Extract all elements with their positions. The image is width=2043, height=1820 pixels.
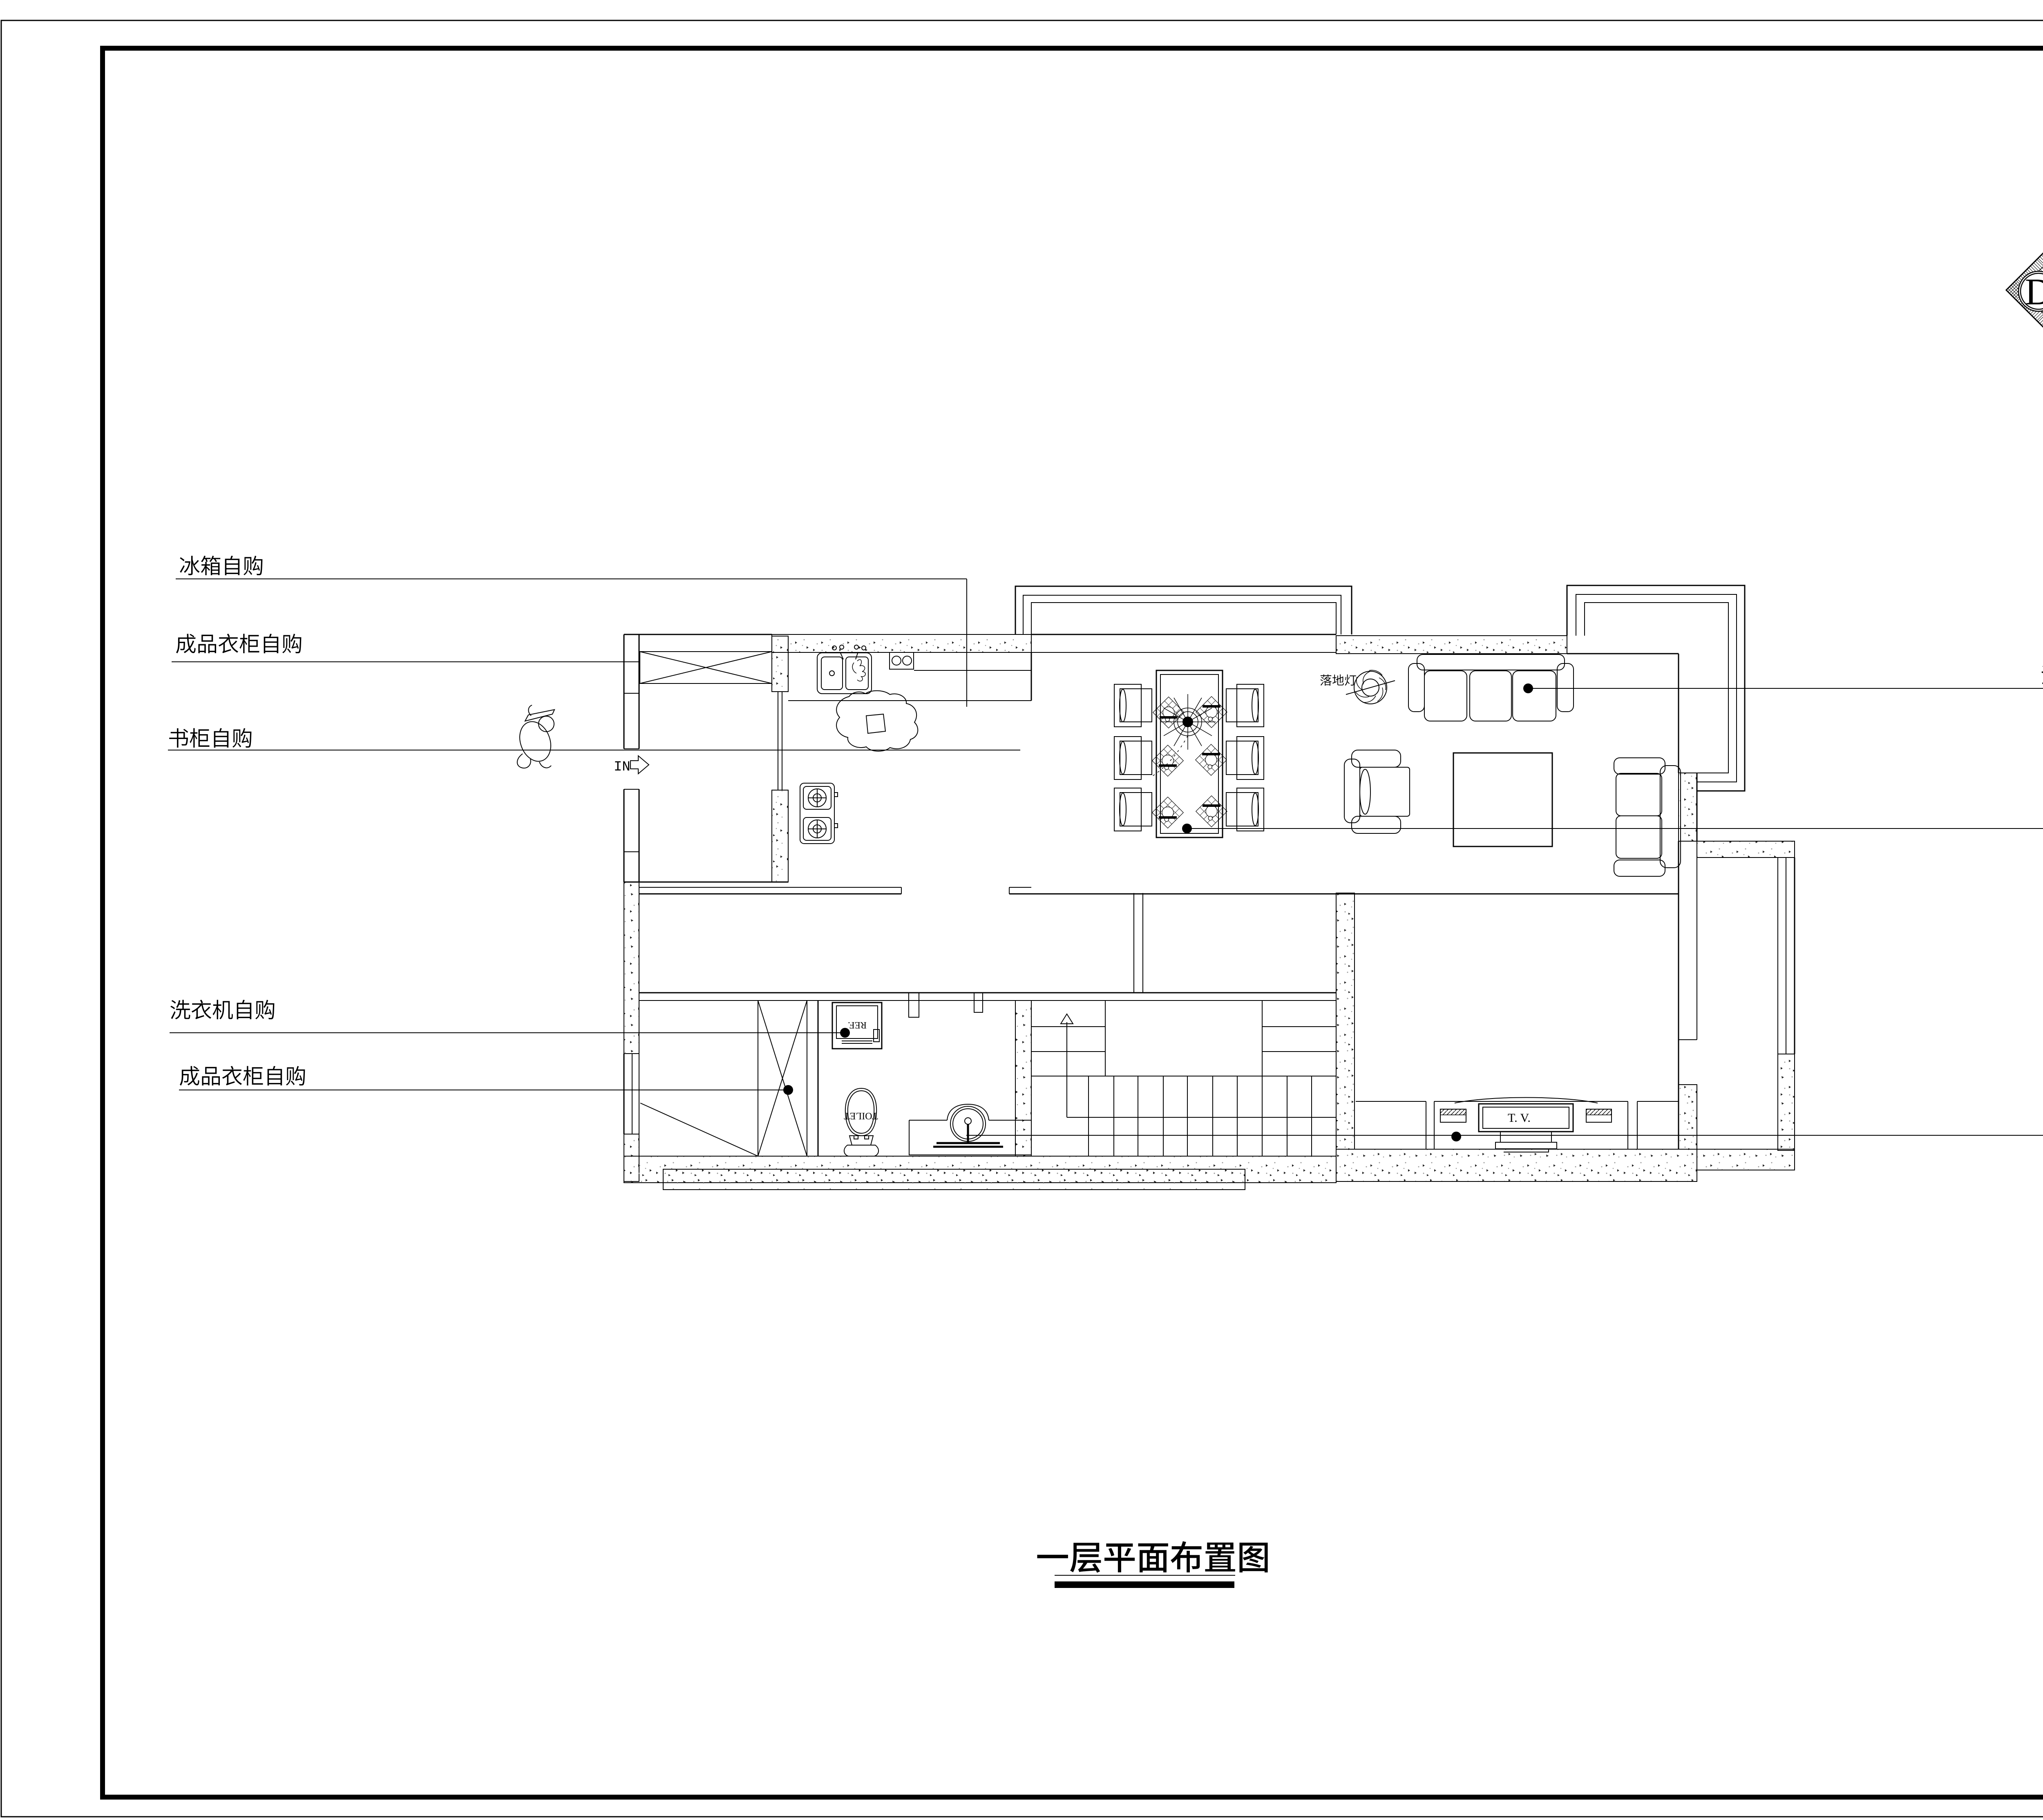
- svg-text:T. V.: T. V.: [1508, 1111, 1531, 1125]
- svg-text:TOILET: TOILET: [844, 1110, 878, 1121]
- svg-text:REF.: REF.: [848, 1020, 867, 1030]
- svg-text:IN: IN: [614, 759, 630, 775]
- svg-text:D: D: [2025, 271, 2043, 313]
